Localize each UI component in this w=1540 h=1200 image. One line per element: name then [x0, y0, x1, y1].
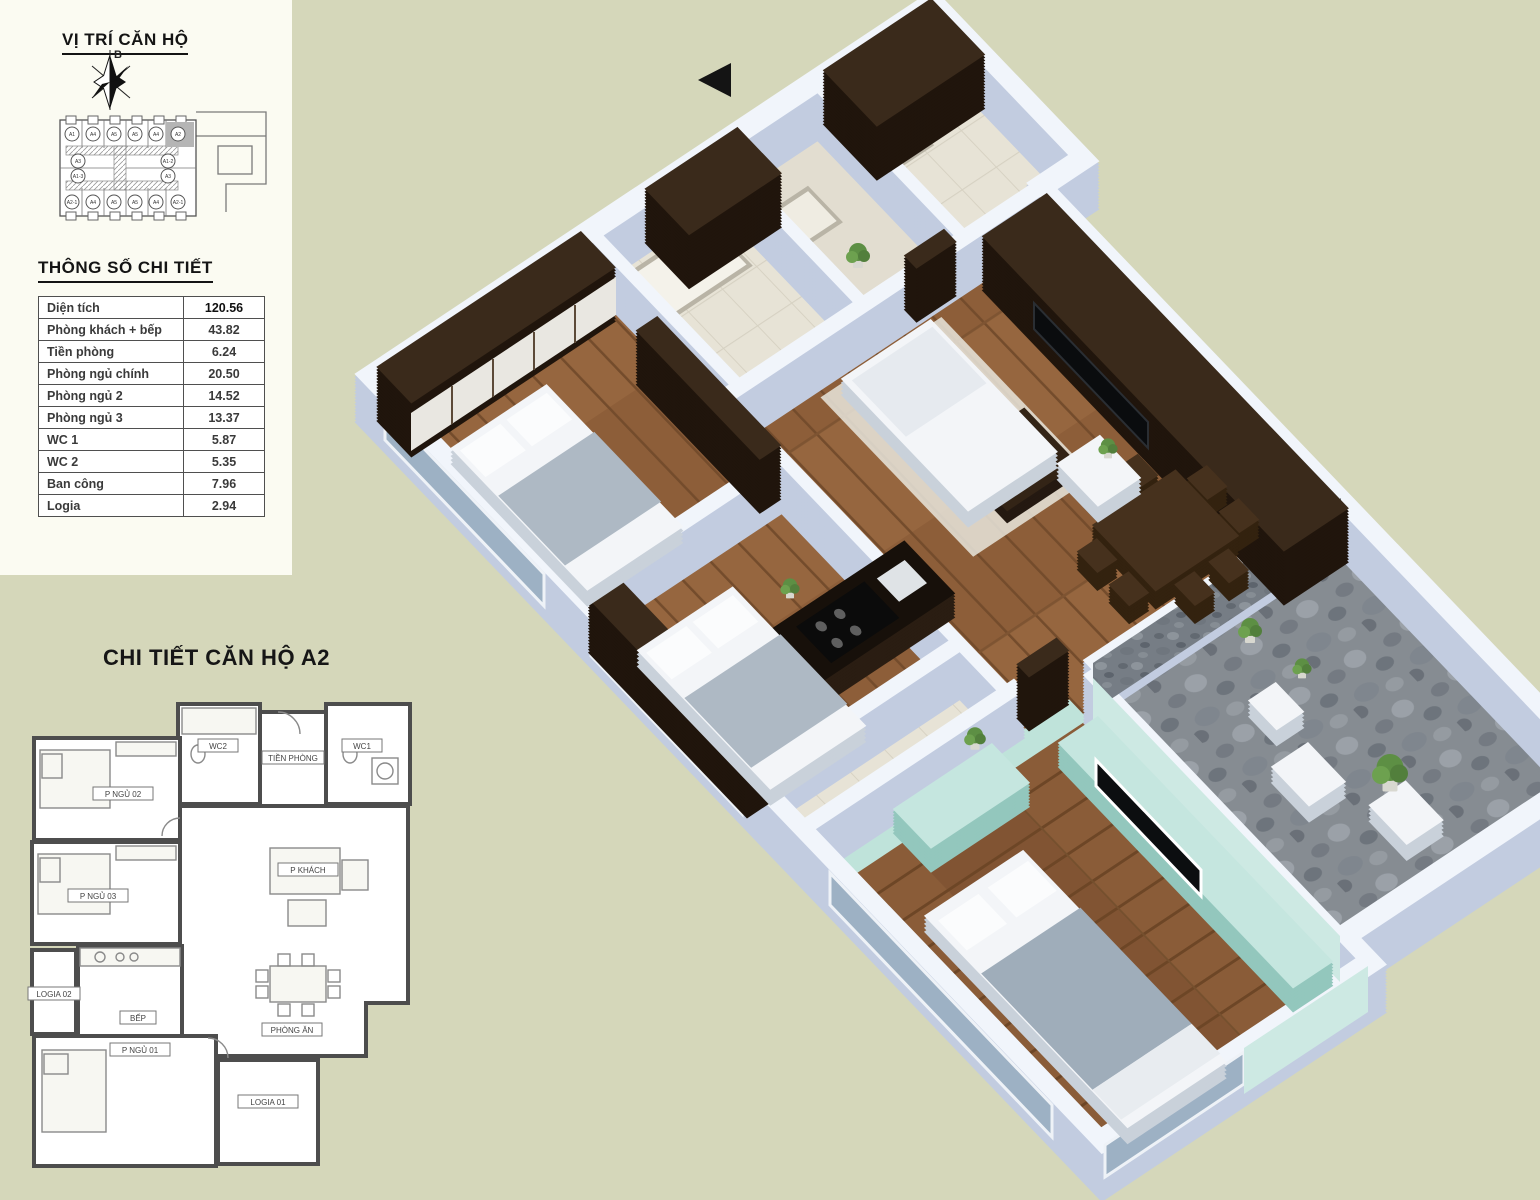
floor-plan-2d: P NGỦ 02 WC2 TIỀN PHÒNG WC1 P NGỦ 03 P K…: [20, 698, 420, 1198]
svg-text:LOGIA 02: LOGIA 02: [36, 990, 72, 999]
spec-row: Phòng ngủ 214.52: [39, 385, 265, 407]
svg-text:WC2: WC2: [209, 742, 227, 751]
svg-text:P NGỦ 01: P NGỦ 01: [122, 1046, 159, 1055]
spec-row: Phòng ngủ 313.37: [39, 407, 265, 429]
svg-text:A1-2: A1-2: [163, 159, 174, 165]
specs-table: Diện tích120.56 Phòng khách + bếp43.82 T…: [38, 296, 265, 517]
north-arrow-icon: [698, 63, 731, 97]
svg-text:A4: A4: [90, 132, 96, 138]
info-panel: VỊ TRÍ CĂN HỘ B: [0, 0, 292, 575]
svg-text:A4: A4: [90, 200, 96, 206]
spec-row: Phòng ngủ chính20.50: [39, 363, 265, 385]
svg-text:A1: A1: [69, 132, 75, 138]
spec-row: Ban công7.96: [39, 473, 265, 495]
specs-title: THÔNG SỐ CHI TIẾT: [38, 258, 213, 283]
spec-row: Diện tích120.56: [39, 297, 265, 319]
svg-text:P NGỦ 03: P NGỦ 03: [80, 892, 117, 901]
svg-text:PHÒNG ĂN: PHÒNG ĂN: [271, 1026, 314, 1035]
tower-outline: [196, 112, 266, 212]
detail-title: CHI TIẾT CĂN HỘ A2: [103, 645, 330, 671]
spec-row: Tiền phòng6.24: [39, 341, 265, 363]
svg-text:P NGỦ 02: P NGỦ 02: [105, 790, 142, 799]
svg-text:A2-1: A2-1: [67, 200, 78, 206]
svg-text:P KHÁCH: P KHÁCH: [290, 866, 326, 875]
compass-icon: B: [92, 49, 130, 110]
svg-text:A5: A5: [132, 132, 138, 138]
svg-text:A1-3: A1-3: [73, 174, 84, 180]
svg-text:A2-1: A2-1: [173, 200, 184, 206]
svg-text:A3: A3: [165, 174, 171, 180]
svg-text:LOGIA 01: LOGIA 01: [250, 1098, 286, 1107]
spec-row: WC 25.35: [39, 451, 265, 473]
building-plan: A1 A4 A5 A5 A4 A2 A3 A1-2 A1-3 A3 A2-1 A…: [60, 116, 196, 220]
svg-text:WC1: WC1: [353, 742, 371, 751]
svg-text:A5: A5: [111, 132, 117, 138]
brochure-page: VỊ TRÍ CĂN HỘ B: [0, 0, 1540, 1200]
svg-text:B: B: [114, 49, 122, 61]
site-plan: B A1: [48, 46, 278, 236]
svg-text:A4: A4: [153, 200, 159, 206]
spec-row: Phòng khách + bếp43.82: [39, 319, 265, 341]
svg-text:A2: A2: [175, 132, 181, 138]
spec-row: Logia2.94: [39, 495, 265, 517]
svg-text:A5: A5: [111, 200, 117, 206]
svg-text:A5: A5: [132, 200, 138, 206]
svg-text:A3: A3: [75, 159, 81, 165]
spec-row: WC 15.87: [39, 429, 265, 451]
svg-text:BẾP: BẾP: [130, 1013, 146, 1023]
svg-text:TIỀN PHÒNG: TIỀN PHÒNG: [268, 753, 318, 763]
svg-text:A4: A4: [153, 132, 159, 138]
